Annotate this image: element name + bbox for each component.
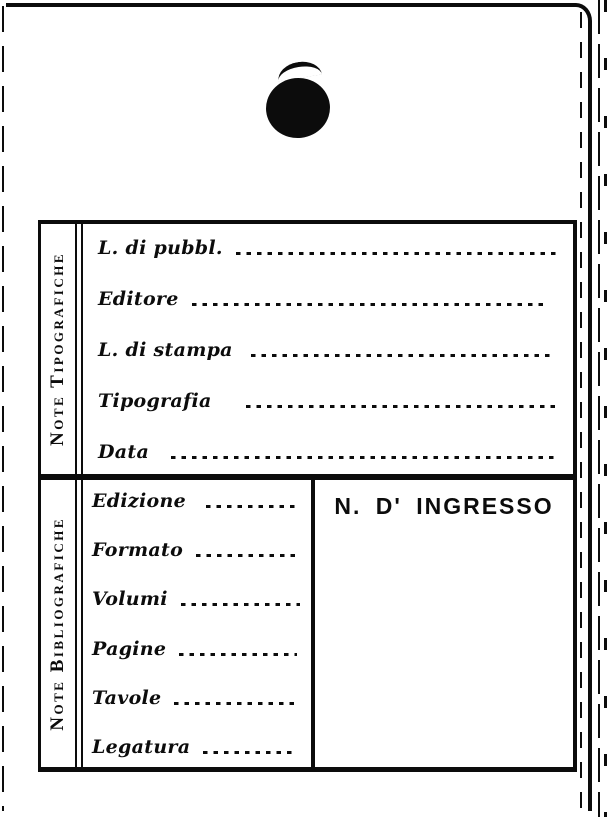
fill-in-line [203, 751, 292, 754]
field-row-edizione: Edizione [92, 492, 303, 512]
field-row-l-di-pubbl: L. di pubbl. [98, 239, 559, 259]
field-row-legatura: Legatura [92, 738, 303, 758]
ingresso-cell: N. D' INGRESSO [315, 480, 573, 767]
side-label-tipografiche: Note Tipografiche [41, 224, 75, 474]
card-edge-right-middle [598, 0, 600, 817]
field-row-data: Data [98, 443, 559, 463]
section-note-tipografiche: Note Tipografiche L. di pubbl. Editore L… [38, 220, 577, 477]
card-edge-right-inner [580, 12, 582, 810]
fill-in-line [206, 505, 300, 508]
double-rule [75, 224, 83, 474]
field-row-pagine: Pagine [92, 640, 303, 660]
card-edge-right-outer [604, 0, 607, 817]
fill-in-line [181, 603, 300, 606]
fill-in-line [251, 354, 552, 357]
field-label: Tavole [92, 689, 161, 709]
field-row-tipografia: Tipografia [98, 392, 559, 412]
fill-in-line [171, 456, 554, 459]
card-edge-left [2, 6, 4, 811]
field-row-editore: Editore [98, 290, 559, 310]
fill-in-line [174, 702, 294, 705]
field-label: Edizione [92, 492, 186, 512]
field-label: Data [98, 443, 149, 463]
fill-in-line [246, 405, 556, 408]
double-rule [75, 480, 83, 767]
side-label-text: Note Bibliografiche [47, 517, 69, 731]
field-label: Editore [98, 290, 179, 310]
side-label-bibliografiche: Note Bibliografiche [41, 480, 75, 767]
tipografiche-fields: L. di pubbl. Editore L. di stampa Tipogr… [83, 224, 573, 474]
library-catalog-card: Note Tipografiche L. di pubbl. Editore L… [0, 0, 609, 817]
fill-in-line [179, 653, 297, 656]
field-row-l-di-stampa: L. di stampa [98, 341, 559, 361]
field-label: L. di stampa [98, 341, 233, 361]
ingresso-heading: N. D' INGRESSO [315, 493, 573, 520]
field-label: Volumi [92, 590, 168, 610]
field-row-tavole: Tavole [92, 689, 303, 709]
field-row-formato: Formato [92, 541, 303, 561]
fill-in-line [196, 554, 301, 557]
side-label-text: Note Tipografiche [47, 252, 69, 446]
field-label: Legatura [92, 738, 190, 758]
field-label: L. di pubbl. [98, 239, 223, 259]
field-label: Formato [92, 541, 183, 561]
bibliografiche-fields: Edizione Formato Volumi Pagine Tavole Le… [83, 480, 311, 767]
fill-in-line [192, 303, 547, 306]
field-label: Tipografia [98, 392, 212, 412]
fill-in-line [236, 252, 556, 255]
field-row-volumi: Volumi [92, 590, 303, 610]
section-note-bibliografiche: Note Bibliografiche Edizione Formato Vol… [38, 477, 577, 772]
field-label: Pagine [92, 640, 166, 660]
